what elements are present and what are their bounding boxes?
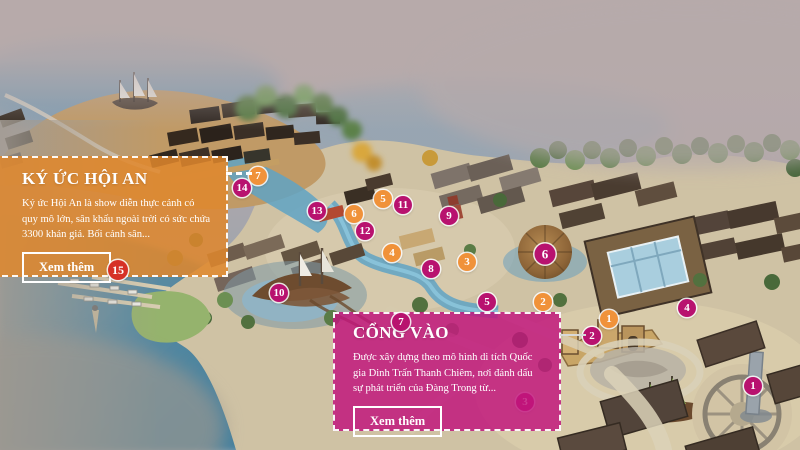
map-marker-magenta-8[interactable]: 8: [422, 260, 440, 278]
map-marker-magenta-13[interactable]: 13: [308, 202, 326, 220]
map-marker-orange-5[interactable]: 5: [374, 190, 392, 208]
kyuc-card-connector-line: [226, 172, 252, 175]
map-marker-orange-2[interactable]: 2: [534, 293, 552, 311]
map-marker-orange-7[interactable]: 7: [249, 167, 267, 185]
map-marker-red-15[interactable]: 15: [108, 260, 128, 280]
kyuc-hoian-card-description: Ký ức Hội An là show diễn thực cảnh có q…: [22, 196, 212, 243]
map-marker-orange-6[interactable]: 6: [345, 205, 363, 223]
congvao-card: CỔNG VÀO Được xây dựng theo mô hình di t…: [333, 312, 561, 431]
map-marker-magenta-7[interactable]: 7: [392, 313, 410, 331]
map-marker-magenta-5[interactable]: 5: [478, 293, 496, 311]
theme-park-map-page: 1234567123456891011121314 KÝ ỨC HỘI AN K…: [0, 0, 800, 450]
kyuc-hoian-card: KÝ ỨC HỘI AN Ký ức Hội An là show diễn t…: [0, 156, 228, 277]
congvao-card-title: CỔNG VÀO: [353, 323, 543, 343]
map-marker-magenta-4[interactable]: 4: [678, 299, 696, 317]
map-marker-magenta-11[interactable]: 11: [394, 196, 412, 214]
map-marker-magenta-1[interactable]: 1: [744, 377, 762, 395]
kyuc-hoian-card-title: KÝ ỨC HỘI AN: [22, 169, 212, 189]
map-marker-magenta-2[interactable]: 2: [583, 327, 601, 345]
map-marker-magenta-12[interactable]: 12: [356, 222, 374, 240]
congvao-read-more-button[interactable]: Xem thêm: [353, 406, 442, 437]
congvao-card-description: Được xây dựng theo mô hình di tích Quốc …: [353, 350, 543, 397]
map-marker-magenta-9[interactable]: 9: [440, 207, 458, 225]
map-marker-orange-3[interactable]: 3: [458, 253, 476, 271]
kyuc-hoian-read-more-button[interactable]: Xem thêm: [22, 252, 111, 283]
map-marker-orange-4[interactable]: 4: [383, 244, 401, 262]
map-marker-magenta-10[interactable]: 10: [270, 284, 288, 302]
map-marker-orange-1[interactable]: 1: [600, 310, 618, 328]
map-marker-magenta-6[interactable]: 6: [535, 244, 556, 265]
map-marker-magenta-14[interactable]: 14: [233, 179, 251, 197]
congvao-card-connector-line: [560, 334, 586, 336]
